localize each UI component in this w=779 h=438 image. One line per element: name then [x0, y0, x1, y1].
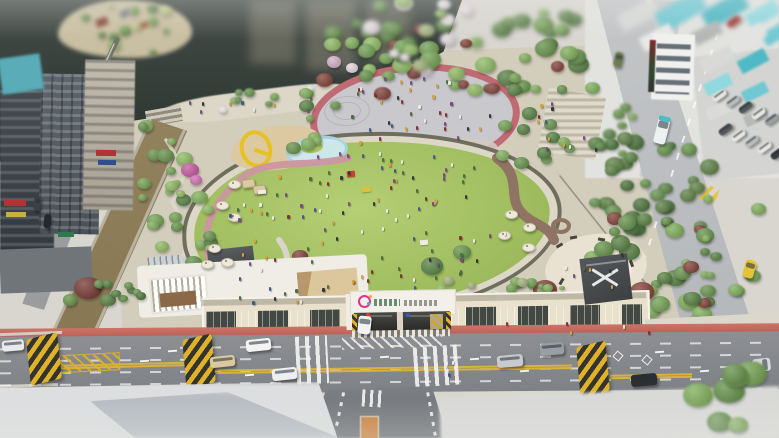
person-dot [309, 177, 311, 181]
blossom-shore-trees [412, 59, 428, 72]
north-belt-near [467, 84, 482, 96]
street-east-trees [728, 284, 742, 296]
pond-walk-trees [330, 101, 341, 110]
pond-walk-trees [235, 89, 243, 96]
windshield [633, 375, 654, 380]
person-dot [489, 114, 491, 118]
person-dot [369, 128, 371, 132]
person-dot [351, 115, 353, 119]
person-dot [445, 364, 447, 368]
accent-tree [421, 257, 443, 275]
striped-median-barrier [576, 340, 610, 397]
person-dot [336, 237, 338, 241]
person-dot [259, 203, 261, 207]
parasol-pole-dot [527, 225, 529, 227]
east-woods-far [617, 132, 633, 145]
person-dot [413, 237, 415, 241]
frontage-garden-trees [526, 278, 537, 287]
parasol [201, 260, 214, 269]
person-dot [300, 300, 302, 304]
person-dot [276, 193, 278, 197]
person-dot [609, 269, 611, 273]
person-dot [538, 115, 540, 119]
frontage-garden-trees [517, 278, 528, 287]
striped-curb [446, 312, 451, 329]
parasol [523, 223, 536, 232]
hedge-row [111, 290, 120, 297]
person-dot [381, 256, 383, 260]
person-dot [467, 127, 469, 131]
shop-sign [58, 232, 74, 237]
crosswalk [413, 345, 460, 388]
car [2, 339, 25, 352]
person-dot [377, 198, 379, 202]
windshield [4, 341, 22, 345]
person-dot [322, 288, 324, 292]
east-woods-far [700, 159, 719, 174]
person-dot [361, 275, 363, 279]
person-dot [621, 253, 623, 257]
east-woods-far [680, 189, 696, 202]
picnic-blanket [258, 190, 266, 195]
plaza-east-trees [537, 147, 551, 158]
parasol-pole-dot [509, 212, 511, 214]
east-woods-near [665, 223, 684, 238]
windshield [359, 319, 370, 325]
tower-beige-windows [83, 60, 136, 211]
north-belt-near [475, 57, 495, 73]
blossom-shore-trees [400, 53, 410, 61]
person-dot [401, 100, 403, 104]
left-slope-trees [138, 194, 146, 201]
plaza-east-trees [507, 84, 522, 96]
suv [540, 342, 565, 356]
person-dot [348, 171, 350, 175]
shop-sign [96, 150, 116, 156]
person-dot [371, 270, 373, 274]
striped-median-barrier [26, 332, 62, 386]
windshield [248, 340, 268, 345]
person-dot [339, 152, 341, 156]
east-woods-far [633, 198, 650, 212]
parasol [228, 180, 241, 189]
person-dot [460, 258, 462, 262]
person-dot [563, 143, 565, 147]
shop-sign [98, 160, 116, 165]
person-dot [436, 84, 438, 88]
person-dot [395, 218, 397, 222]
person-dot [476, 259, 478, 263]
person-dot [302, 215, 304, 219]
person-dot [386, 209, 388, 213]
east-woods-near [609, 227, 620, 236]
east-woods-near [657, 272, 672, 284]
person-dot [424, 119, 426, 123]
person-dot [393, 179, 395, 183]
parasol-pole-dot [526, 245, 528, 247]
person-dot [457, 136, 459, 140]
hatch-panel [430, 314, 443, 329]
scene [0, 0, 779, 438]
east-woods-far [637, 213, 652, 225]
person-dot [431, 249, 433, 253]
plaza-east-trees [498, 120, 512, 131]
person-dot [451, 163, 453, 167]
person-dot [367, 279, 369, 283]
person-dot [412, 176, 414, 180]
windshield [212, 357, 232, 362]
east-woods-far [655, 201, 669, 213]
person-dot [583, 136, 585, 140]
person-dot [459, 236, 461, 240]
person-dot [540, 104, 542, 108]
left-slope-trees [191, 191, 208, 204]
person-dot [360, 87, 362, 91]
pond-walk-trees [270, 93, 279, 100]
person-dot [473, 166, 475, 170]
person-dot [260, 268, 262, 272]
frontage-garden-trees [559, 286, 565, 291]
person-dot [300, 204, 302, 208]
person-dot [448, 81, 450, 85]
picnic-blanket [362, 187, 371, 193]
person-dot [413, 278, 415, 282]
person-dot [450, 102, 452, 106]
parasol-pole-dot [220, 203, 222, 205]
person-dot [623, 325, 625, 329]
person-dot [416, 189, 418, 193]
person-dot [400, 274, 402, 278]
parasol [216, 201, 229, 210]
person-dot [390, 186, 392, 190]
person-dot [342, 211, 344, 215]
person-dot [388, 163, 390, 167]
person-dot [418, 105, 420, 109]
top-haze-veil [0, 0, 779, 40]
plaza-east-trees [522, 107, 538, 120]
person-dot [388, 121, 390, 125]
person-dot [287, 215, 289, 219]
north-belt-near [358, 44, 375, 57]
accent-tree [327, 56, 341, 67]
left-slope-trees [169, 212, 182, 222]
person-dot [410, 112, 412, 116]
corner-building-windows [655, 43, 691, 94]
person-dot [373, 202, 375, 206]
plaza-east-trees [514, 157, 529, 169]
plaza-west-trees [301, 138, 316, 150]
parasol [221, 258, 234, 267]
barrier-signal-blue [406, 313, 410, 317]
windshield [45, 216, 51, 220]
windshield [499, 356, 520, 361]
person-dot [269, 287, 271, 291]
accent-tree [453, 245, 471, 259]
person-dot [391, 124, 393, 128]
person-dot [432, 95, 434, 99]
east-woods-near [611, 235, 630, 251]
frontage-garden-trees [467, 282, 476, 289]
plaza-west-trees [286, 142, 300, 153]
person-dot [347, 154, 349, 158]
person-dot [249, 262, 251, 266]
east-woods-far [605, 165, 618, 176]
left-slope-trees [165, 181, 178, 191]
east-woods-far [650, 189, 665, 201]
person-dot [397, 96, 399, 100]
accent-tree [346, 63, 358, 73]
hedge-row [136, 292, 146, 300]
person-dot [239, 296, 241, 300]
street-east-trees [751, 203, 765, 215]
parasol-pole-dot [212, 246, 214, 248]
windshield [746, 262, 756, 269]
parasol-pole-dot [232, 215, 234, 217]
person-dot [489, 234, 491, 238]
parasol [522, 243, 535, 252]
person-dot [243, 203, 245, 207]
shop-sign [4, 200, 26, 206]
person-dot [648, 331, 650, 335]
person-dot [418, 207, 420, 211]
parasol-pole-dot [205, 262, 207, 264]
north-belt-near [551, 61, 564, 71]
bottom-haze-veil [0, 400, 779, 438]
person-dot [573, 274, 575, 278]
east-woods-near [618, 215, 636, 230]
person-dot [460, 253, 462, 257]
street-east-trees [700, 285, 716, 297]
person-dot [307, 247, 309, 251]
left-slope-trees [138, 122, 149, 130]
barrier-arm [406, 315, 432, 317]
person-dot [241, 101, 243, 105]
accent-tree [63, 294, 77, 305]
gate-sign-text [374, 299, 400, 306]
person-dot [446, 80, 448, 84]
person-dot [394, 169, 396, 173]
person-dot [273, 103, 275, 107]
gate-logo-dot [367, 302, 370, 305]
person-dot [327, 285, 329, 289]
person-dot [252, 301, 254, 305]
plaza-east-trees [496, 150, 510, 161]
person-dot [462, 180, 464, 184]
pond-walk-trees [265, 101, 273, 107]
person-dot [359, 141, 361, 145]
person-dot [237, 208, 239, 212]
person-dot [278, 175, 280, 179]
person-dot [352, 280, 354, 284]
east-woods-near [683, 261, 699, 274]
parasol [505, 210, 518, 219]
north-belt-near [486, 83, 500, 94]
parasol-pole-dot [225, 260, 227, 262]
person-dot [435, 199, 437, 203]
person-dot [504, 232, 506, 236]
left-slope-trees [202, 205, 214, 214]
person-dot [448, 373, 450, 377]
street-east-trees [700, 248, 709, 256]
person-dot [459, 115, 461, 119]
person-dot [444, 122, 446, 126]
corner-tree [722, 364, 747, 384]
city-trees [628, 113, 637, 120]
parasol [208, 244, 221, 253]
parasol-pole-dot [232, 182, 234, 184]
car [631, 373, 658, 387]
hedge-row [103, 280, 112, 287]
north-belt-near [359, 70, 373, 81]
north-belt-near [374, 87, 391, 100]
person-dot [229, 214, 231, 218]
person-dot [551, 107, 553, 111]
north-belt-near [519, 53, 531, 63]
person-dot [361, 230, 363, 234]
east-woods-near [683, 292, 700, 306]
person-dot [260, 211, 262, 215]
person-dot [425, 197, 427, 201]
striped-curb [352, 314, 357, 331]
gate-logo-dot [369, 295, 372, 298]
person-dot [295, 289, 297, 293]
picnic-blanket [420, 240, 428, 246]
person-dot [374, 93, 376, 97]
frontage-garden-trees [443, 276, 454, 285]
east-woods-far [681, 143, 697, 155]
car [497, 354, 524, 368]
person-dot [242, 253, 244, 257]
crosswalk [295, 335, 329, 385]
person-dot [250, 208, 252, 212]
person-dot [425, 231, 427, 235]
person-dot [317, 155, 319, 159]
person-dot [238, 218, 240, 222]
blossom-shore-trees [389, 49, 399, 57]
person-dot [362, 90, 364, 94]
person-dot [340, 176, 342, 180]
north-belt-near [560, 46, 577, 60]
teal-roof-building [0, 53, 44, 94]
east-woods-far [624, 152, 638, 163]
windshield [615, 54, 623, 59]
plaza-east-trees [517, 124, 530, 135]
windshield [274, 369, 294, 374]
plaza-east-trees [557, 85, 567, 93]
person-dot [570, 331, 572, 335]
shop-sign [6, 212, 26, 217]
person-dot [285, 193, 287, 197]
accent-tree [190, 175, 202, 185]
person-dot [409, 88, 411, 92]
person-dot [189, 101, 191, 105]
windshield [35, 198, 41, 202]
person-dot [435, 276, 437, 280]
windshield [542, 344, 561, 349]
person-dot [296, 300, 298, 304]
person-dot [437, 263, 439, 267]
person-dot [332, 221, 334, 225]
person-dot [379, 152, 381, 156]
gate-sign-text [404, 300, 438, 306]
car-exiting-garage [357, 315, 372, 334]
person-dot [410, 81, 412, 85]
